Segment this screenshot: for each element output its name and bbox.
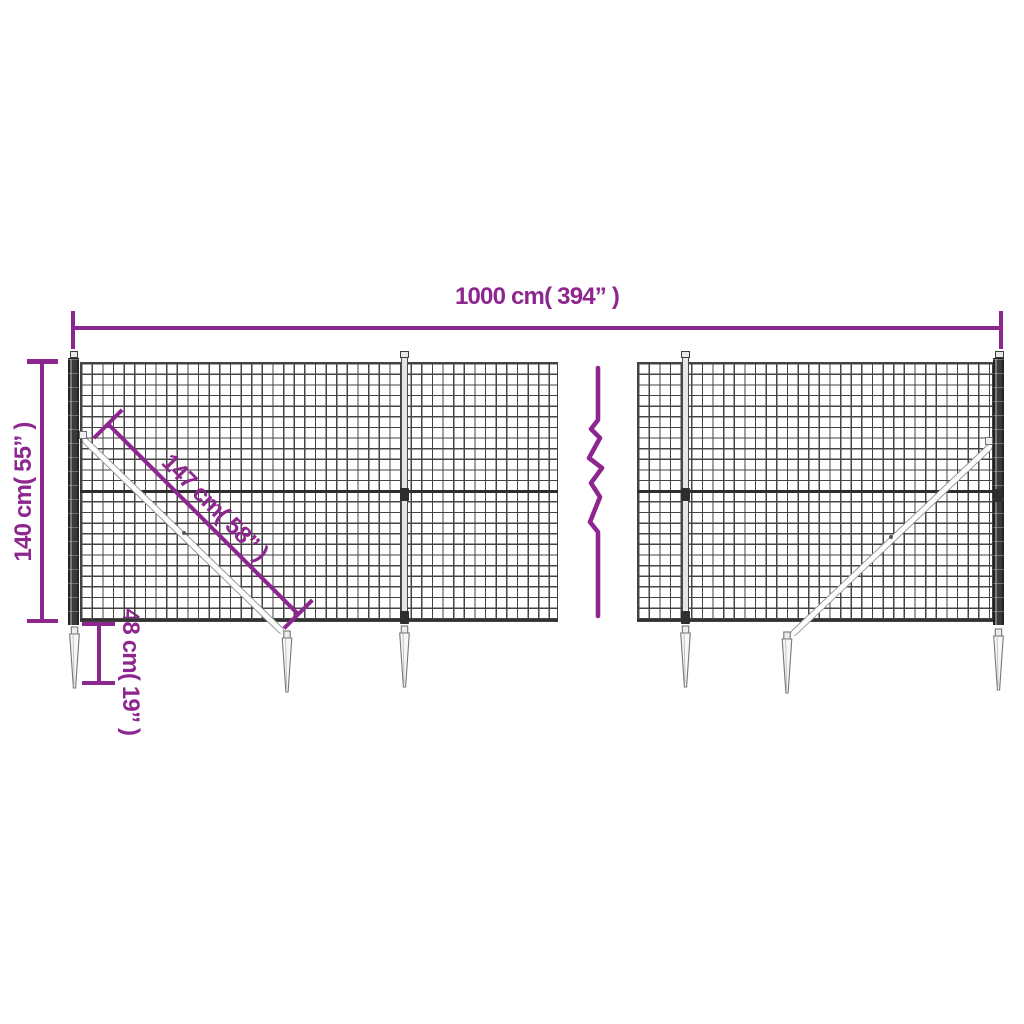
post-connector [400, 488, 409, 501]
anchor-spike [994, 629, 1004, 690]
anchor-spike [70, 627, 80, 688]
width-dimension-label: 1000 cm( 394” ) [455, 283, 619, 311]
fence-dimension-diagram: 1000 cm( 394” ) 140 cm( 55” ) 48 cm( 19”… [0, 0, 1024, 1024]
height-dimension-label: 140 cm( 55” ) [10, 422, 38, 561]
height-dimension-line [40, 361, 45, 621]
height-dimension-cap-top [27, 359, 58, 364]
post-cap [995, 351, 1004, 358]
anchor-spike [681, 626, 691, 687]
width-dimension-tick-left [71, 311, 76, 349]
post-cap [70, 351, 79, 358]
post-cap [400, 351, 409, 358]
fence-post-left [68, 358, 79, 625]
post-cap [681, 351, 690, 358]
brace-mount-plate [985, 437, 993, 445]
ground-spikes [0, 620, 1024, 710]
width-dimension-line [73, 326, 1001, 331]
post-connector [994, 489, 1003, 502]
break-mark-icon [560, 360, 640, 625]
anchor-spike [400, 626, 410, 687]
brace-bolt [889, 535, 893, 539]
anchor-spike [782, 632, 792, 693]
brace-bolt [182, 531, 186, 535]
mesh-middle-wire-left [80, 490, 558, 493]
post-connector [681, 488, 690, 501]
brace-mount-plate [79, 431, 87, 439]
anchor-spike [282, 631, 292, 692]
width-dimension-tick-right [999, 311, 1004, 349]
